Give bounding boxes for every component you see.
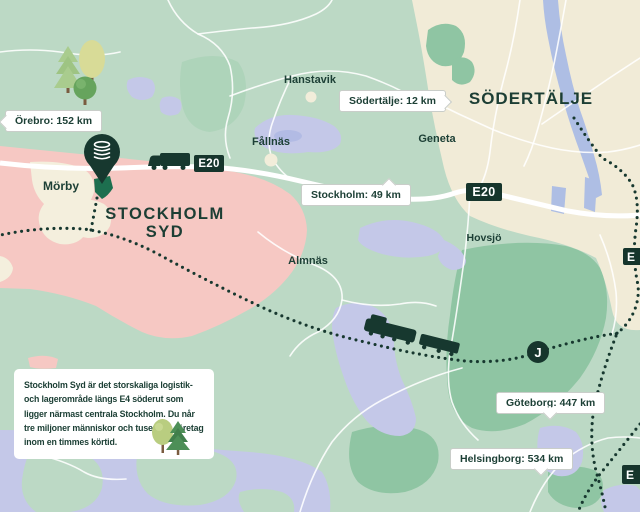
- stockholm-syd-title-line2: SYD: [105, 223, 225, 241]
- stockholm-syd-area: [28, 356, 58, 369]
- e-badge-edge-mid: E: [623, 248, 640, 265]
- callout-stockholm: Stockholm: 49 km: [301, 184, 411, 206]
- lake: [160, 96, 182, 115]
- place-label-almnas: Almnäs: [288, 255, 328, 267]
- callout-sodertalje-text: Södertälje: 12 km: [349, 95, 436, 107]
- place-label-morby: Mörby: [43, 179, 79, 193]
- place-label-fallnas: Fållnäs: [252, 136, 290, 148]
- map-canvas: SÖDERTÄLJE STOCKHOLM SYD Hanstavik Fålln…: [0, 0, 640, 512]
- tree-icons-info-box: [143, 413, 203, 458]
- e20-badge-east: E20: [466, 183, 502, 201]
- village-dot: [265, 154, 278, 167]
- e-badge-edge-bottom: E: [622, 465, 640, 484]
- stockholm-syd-title: STOCKHOLM SYD: [105, 205, 225, 241]
- callout-helsingborg: Helsingborg: 534 km: [450, 448, 573, 470]
- callout-orebro: Örebro: 152 km: [5, 110, 102, 132]
- callout-orebro-text: Örebro: 152 km: [15, 115, 92, 127]
- callout-sodertalje: Södertälje: 12 km: [339, 90, 446, 112]
- lake: [601, 485, 640, 512]
- stockholm-syd-title-line1: STOCKHOLM: [105, 205, 225, 223]
- village-dot: [306, 92, 317, 103]
- e20-badge-west: E20: [194, 155, 224, 172]
- place-label-hanstavik: Hanstavik: [284, 74, 336, 86]
- rail-station-J-badge: J: [527, 341, 549, 363]
- place-label-hovsjo: Hovsjö: [466, 232, 501, 244]
- sodertalje-title: SÖDERTÄLJE: [469, 89, 593, 109]
- callout-goteborg: Göteborg: 447 km: [496, 392, 605, 414]
- callout-helsingborg-text: Helsingborg: 534 km: [460, 453, 563, 465]
- place-label-geneta: Geneta: [418, 133, 455, 145]
